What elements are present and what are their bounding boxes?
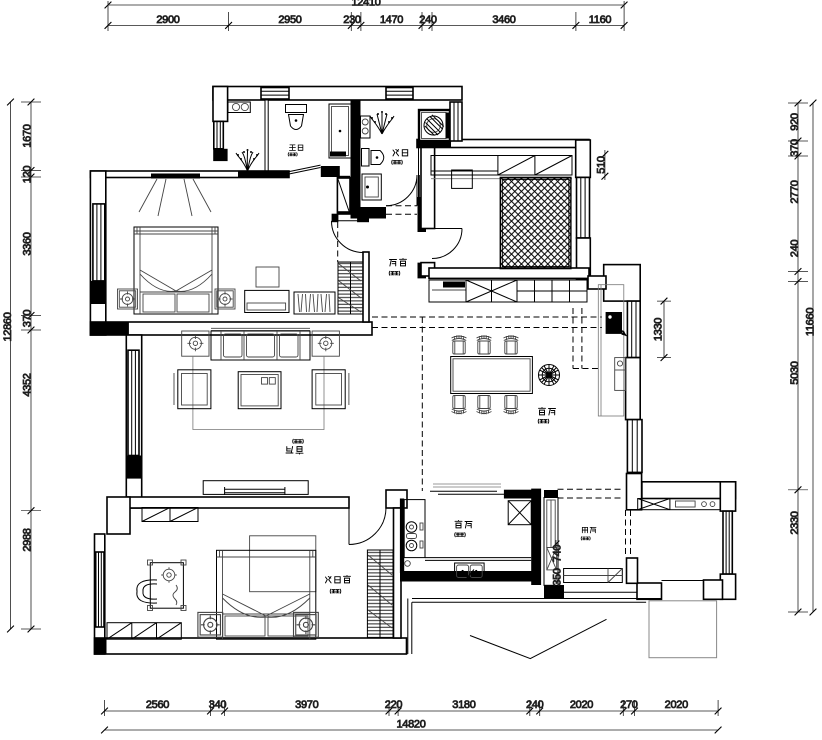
svg-text:1160: 1160 — [589, 14, 612, 26]
svg-text:1670: 1670 — [22, 124, 34, 147]
svg-text:270: 270 — [620, 699, 638, 711]
svg-text:3180: 3180 — [452, 699, 475, 711]
svg-text:2770: 2770 — [789, 180, 801, 203]
svg-text:120: 120 — [22, 166, 34, 184]
svg-text:220: 220 — [385, 699, 403, 711]
svg-text:240: 240 — [789, 240, 801, 258]
svg-text:2020: 2020 — [570, 699, 593, 711]
svg-text:14820: 14820 — [396, 719, 425, 731]
svg-text:370: 370 — [22, 310, 34, 328]
svg-text:2020: 2020 — [665, 699, 688, 711]
svg-text:4352: 4352 — [22, 373, 34, 396]
svg-text:12860: 12860 — [2, 312, 14, 341]
svg-text:1330: 1330 — [653, 318, 665, 341]
svg-text:3360: 3360 — [22, 232, 34, 255]
svg-text:350: 350 — [552, 568, 564, 586]
svg-text:230: 230 — [343, 14, 361, 26]
svg-text:340: 340 — [209, 699, 227, 711]
svg-text:2560: 2560 — [146, 699, 169, 711]
svg-text:2988: 2988 — [22, 528, 34, 551]
svg-text:3970: 3970 — [295, 699, 318, 711]
svg-text:11660: 11660 — [805, 308, 817, 336]
svg-text:2330: 2330 — [789, 511, 801, 534]
svg-text:5030: 5030 — [789, 361, 801, 384]
svg-text:920: 920 — [789, 113, 801, 131]
svg-text:510: 510 — [596, 156, 608, 174]
svg-text:370: 370 — [789, 139, 801, 157]
svg-text:1470: 1470 — [380, 14, 403, 26]
svg-text:240: 240 — [419, 14, 437, 26]
svg-text:2950: 2950 — [278, 14, 301, 26]
svg-text:12410: 12410 — [351, 0, 380, 9]
svg-text:3460: 3460 — [492, 14, 515, 26]
svg-text:240: 240 — [526, 699, 544, 711]
svg-text:2900: 2900 — [156, 14, 179, 26]
svg-text:740: 740 — [552, 545, 564, 563]
